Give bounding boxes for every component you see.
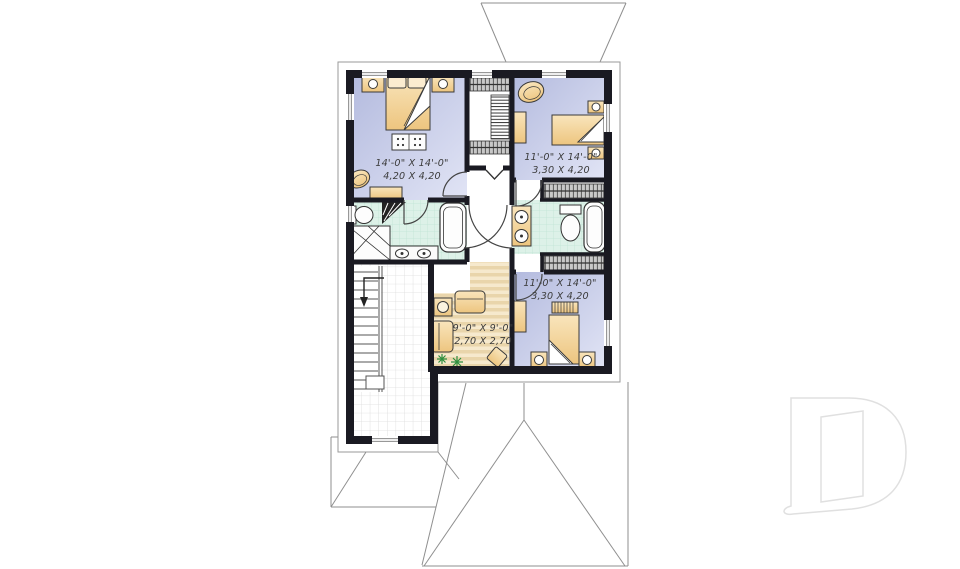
bedroom2-dimension-imperial: 11'-0" X 14'-0"	[524, 152, 597, 163]
armchair	[431, 321, 453, 352]
window	[472, 70, 492, 78]
bedroom3-dimension-imperial: 11'-0" X 14'-0"	[523, 278, 596, 289]
lamp-icon	[369, 80, 378, 89]
window	[604, 104, 612, 132]
dresser	[370, 187, 402, 199]
armchair	[455, 291, 485, 313]
drummond-d-watermark-icon	[784, 398, 906, 514]
window	[372, 436, 398, 444]
pillow	[408, 77, 426, 88]
window	[362, 70, 387, 78]
toilet-bowl	[355, 207, 373, 224]
sitting-area-dimension-imperial: 9'-0" X 9'-0"	[453, 323, 514, 334]
floor-plan-drawing: 14'-0" X 14'-0" 4,20 X 4,20 11'-0" X 14'…	[0, 0, 960, 569]
closet-entry-mark	[486, 170, 503, 179]
lamp-icon	[439, 80, 448, 89]
pillow	[388, 77, 406, 88]
stair-landing	[366, 376, 384, 389]
closet-shelves-icon	[491, 95, 509, 139]
lamp-icon	[592, 103, 600, 111]
door-arc	[464, 205, 507, 248]
bedroom2-dimension-metric: 3,30 X 4,20	[532, 165, 590, 176]
window	[604, 320, 612, 346]
floor-plan-page: 14'-0" X 14'-0" 4,20 X 4,20 11'-0" X 14'…	[0, 0, 960, 569]
window	[346, 206, 354, 222]
dresser	[514, 301, 526, 332]
staircase	[352, 266, 384, 392]
bench	[552, 302, 578, 313]
toilet-tank	[560, 205, 581, 214]
door-arc	[469, 205, 512, 248]
bedroom3-dimension-metric: 3,30 X 4,20	[531, 291, 589, 302]
sitting-area-dimension-metric: 2,70 X 2,70	[454, 336, 512, 347]
master-bedroom-dimension-imperial: 14'-0" X 14'-0"	[375, 158, 448, 169]
window	[346, 94, 354, 120]
master-bedroom-dimension-metric: 4,20 X 4,20	[383, 171, 441, 182]
window	[542, 70, 566, 78]
lamp-icon	[535, 356, 544, 365]
dresser	[514, 112, 526, 143]
lamp-icon	[438, 302, 449, 313]
toilet-bowl	[561, 215, 580, 241]
lamp-icon	[583, 356, 592, 365]
